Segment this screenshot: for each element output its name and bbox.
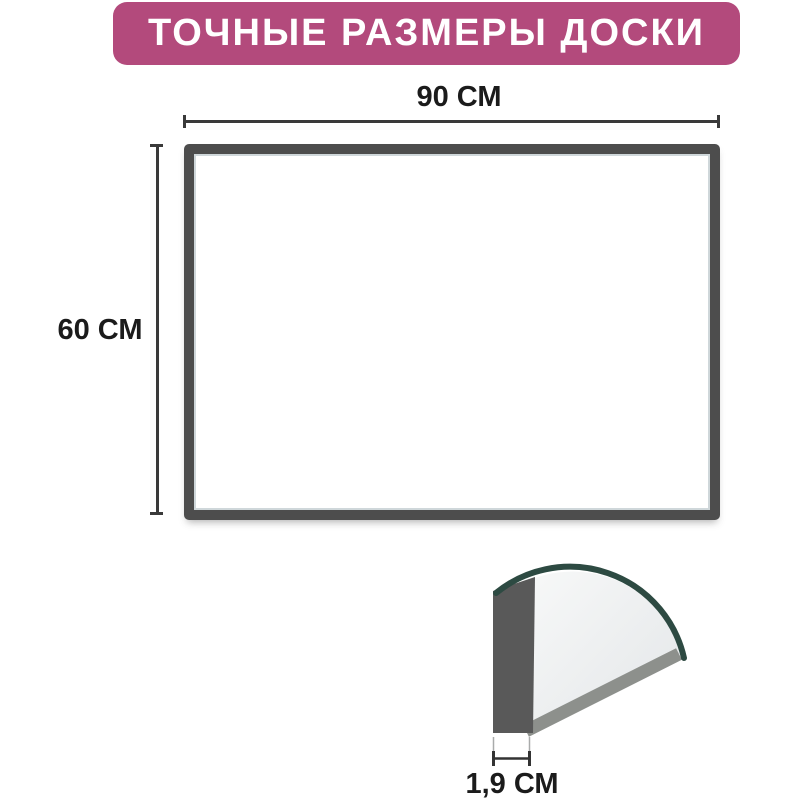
height-dimension-label: 60 СМ: [30, 316, 170, 345]
infographic-board-dimensions: ТОЧНЫЕ РАЗМЕРЫ ДОСКИ 90 СМ 60 СМ 1,9 СМ: [0, 0, 800, 800]
height-dimension-line: [156, 145, 159, 515]
page-title: ТОЧНЫЕ РАЗМЕРЫ ДОСКИ: [148, 12, 705, 55]
title-banner: ТОЧНЫЕ РАЗМЕРЫ ДОСКИ: [113, 2, 740, 65]
height-dimension-tick-top: [150, 144, 163, 147]
width-dimension-line: [184, 120, 719, 123]
cross-section-surface: [531, 572, 682, 730]
width-dimension-tick-right: [717, 115, 720, 128]
cross-section-frame-profile: [493, 577, 535, 733]
height-dimension-tick-bottom: [150, 512, 163, 515]
width-dimension-label: 90 СМ: [359, 83, 559, 112]
board-front-view: [184, 144, 720, 520]
thickness-dimension-label: 1,9 СМ: [436, 770, 588, 799]
cross-section-view: [440, 540, 700, 800]
width-dimension-tick-left: [183, 115, 186, 128]
